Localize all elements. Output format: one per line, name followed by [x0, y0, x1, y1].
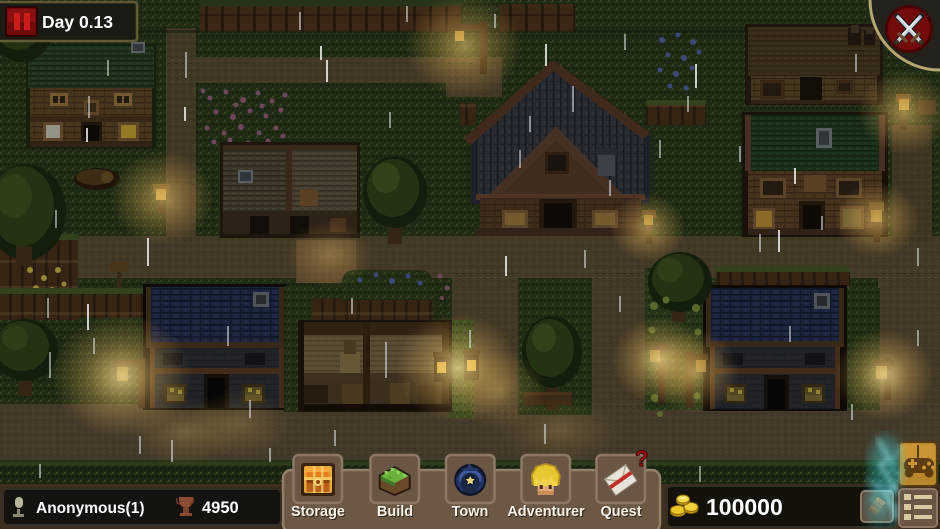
svg-text:Adventurer: Adventurer: [507, 504, 585, 520]
svg-text:Anonymous(1): Anonymous(1): [36, 500, 145, 517]
svg-text:Day 0.13: Day 0.13: [42, 12, 113, 32]
svg-text:Storage: Storage: [291, 504, 345, 520]
svg-text:Town: Town: [452, 504, 489, 520]
svg-text:4950: 4950: [202, 499, 239, 517]
svg-text:Build: Build: [377, 504, 413, 520]
svg-text:Quest: Quest: [600, 504, 641, 520]
svg-text:100000: 100000: [706, 494, 783, 520]
svg-text:?: ?: [635, 446, 648, 471]
